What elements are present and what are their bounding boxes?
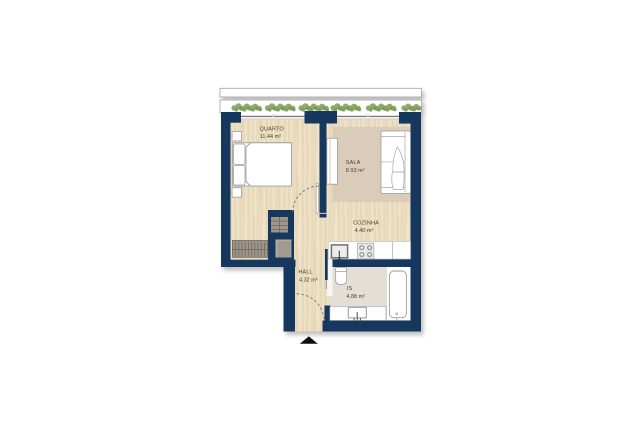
svg-text:4.32 m²: 4.32 m²	[299, 277, 318, 283]
svg-text:QUARTO: QUARTO	[260, 126, 285, 132]
svg-text:IS: IS	[347, 286, 353, 292]
svg-text:4.88 m²: 4.88 m²	[346, 294, 365, 300]
svg-text:HALL: HALL	[298, 270, 312, 276]
svg-text:SALA: SALA	[346, 160, 361, 166]
svg-text:11.44 m²: 11.44 m²	[260, 134, 281, 140]
svg-text:COZINHA: COZINHA	[353, 221, 379, 227]
svg-text:8.93 m²: 8.93 m²	[346, 168, 365, 174]
svg-text:4.40 m²: 4.40 m²	[355, 228, 374, 234]
